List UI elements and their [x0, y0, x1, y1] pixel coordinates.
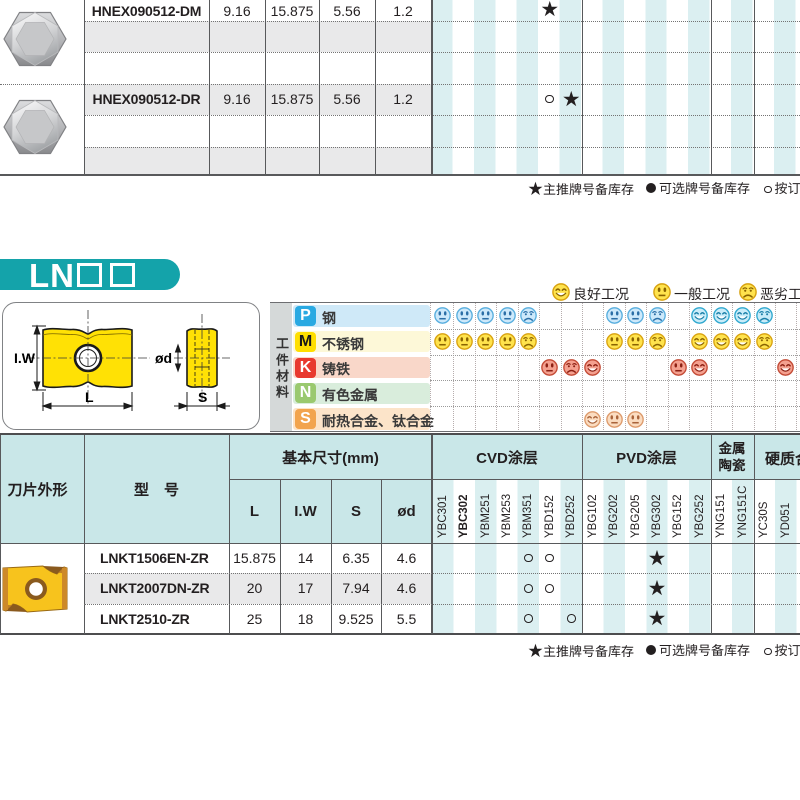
svg-text:L: L [85, 389, 94, 405]
svg-text:S: S [198, 389, 207, 405]
svg-text:ød: ød [155, 350, 172, 366]
svg-text:I.W: I.W [14, 350, 36, 366]
